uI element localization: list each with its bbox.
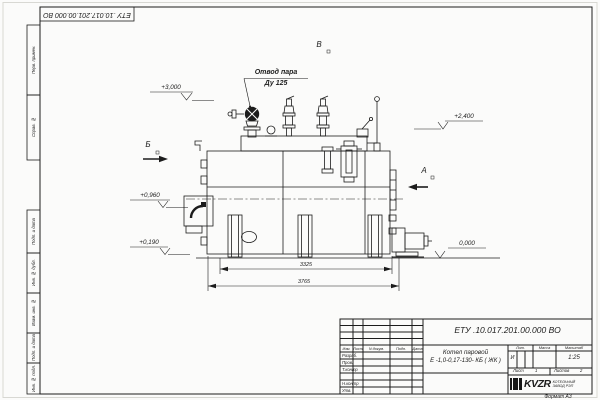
margin-stamp-podp-data-1: Подп. и дата (27, 210, 40, 253)
elevation-2400: +2,400 (444, 113, 484, 120)
row-nkontr: Н.контр (342, 382, 359, 387)
elevation-0960: +0,960 (128, 192, 172, 199)
col-header-izm: Изм. (340, 347, 353, 351)
elevation-0190: +0,190 (127, 239, 171, 246)
manufacturer-logo: KVZR КОТЕЛЬНЫЙ ЗАВОД РЭП (510, 376, 590, 392)
product-name-line1: Котел паровой (423, 349, 508, 356)
product-name-line2: Е -1,0-0,17-130- КБ ( ЖК ) (423, 358, 508, 365)
format-note: Формат А3 (536, 395, 580, 400)
scale-value: 1:25 (556, 355, 592, 362)
elevation-3000: +3,000 (149, 84, 193, 91)
view-label-left: Б (141, 140, 155, 149)
view-label-right: А (417, 166, 431, 175)
sheet-frame (3, 3, 597, 398)
lit-value: И (508, 355, 517, 361)
sheet-line-art (0, 0, 600, 400)
lit-header: Лит. (508, 346, 533, 350)
elevation-0000: 0,000 (447, 240, 487, 247)
view-label-top: В (312, 40, 326, 49)
margin-stamp-perv-primen: Перв. примен. (27, 25, 40, 95)
elevation-marks (130, 92, 486, 258)
scale-header: Масштаб (556, 346, 592, 350)
top-doc-number-stamp: ЕТУ .10.017.201.00.000 ВО (40, 7, 134, 21)
row-utv: Утв. (342, 389, 352, 394)
drawing-sheet: ЕТУ .10.017.201.00.000 ВО Перв. примен. … (0, 0, 600, 400)
col-header-doc: N докум. (363, 347, 390, 351)
margin-stamp-vzam-inv: Взам. инв. № (27, 293, 40, 333)
row-razrab: Разраб. (342, 354, 357, 359)
callout-steam-outlet-line2: Ду 125 (244, 80, 308, 88)
col-header-list: Лист (353, 347, 363, 351)
boiler-drawing (184, 96, 500, 258)
title-doc-number: ЕТУ .10.017.201.00.000 ВО (423, 326, 592, 336)
logo-subtitle-2: ЗАВОД РЭП (553, 384, 576, 388)
sheets-value: 2 (580, 369, 582, 374)
sheet-label: Лист (513, 369, 524, 374)
callout-steam-outlet-line1: Отвод пара (244, 69, 308, 77)
margin-stamp-podp-data-2: Подп. и дата (27, 333, 40, 363)
sheet-value: 1 (535, 369, 537, 374)
row-prov: Пров. (342, 361, 353, 366)
margin-stamp-inv-podl: Инв. № подл. (27, 363, 40, 394)
sheets-label: Листов (554, 369, 569, 374)
logo-barcode-icon (510, 378, 522, 390)
dimension-3765: 3765 (278, 279, 330, 285)
col-header-podp: Подп. (390, 347, 412, 351)
logo-text: KVZR (524, 378, 551, 390)
row-tkontr: Т.контр (342, 368, 358, 373)
mass-header: Масса (533, 346, 556, 350)
col-header-data: Дата (412, 347, 423, 351)
margin-stamp-inv-dubl: Инв. № дубл. (27, 253, 40, 293)
dimension-3325: 3325 (280, 262, 332, 268)
margin-stamp-sprav-no: Справ. № (27, 95, 40, 160)
